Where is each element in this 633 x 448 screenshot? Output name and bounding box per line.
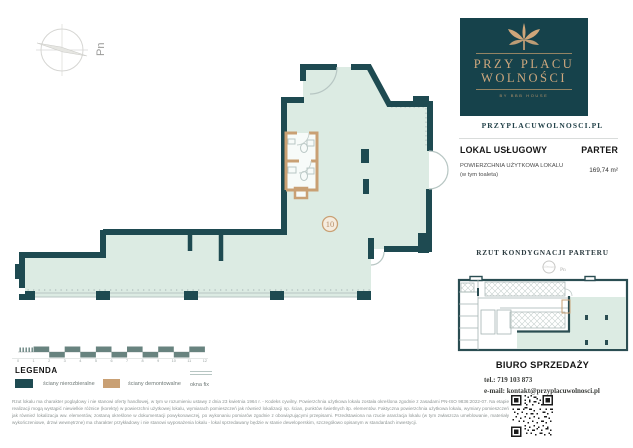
logo-tagline: BY BBB HOUSE	[500, 93, 549, 98]
legend-swatch-demountable-walls	[103, 379, 120, 388]
svg-text:8: 8	[142, 359, 144, 363]
logo-title-line2: WOLNOŚCI	[474, 71, 575, 85]
svg-text:4: 4	[79, 359, 81, 363]
website-url: PRZYPLACUWOLNOSCI.PL	[455, 121, 630, 130]
sales-contact: tel.: 719 103 873 e-mail: kontakt@przypl…	[484, 375, 600, 396]
mini-floorplan	[459, 277, 627, 351]
legend-label-demountable-walls: ściany demontowalne	[128, 381, 181, 387]
svg-text:7: 7	[126, 359, 128, 363]
svg-text:2: 2	[48, 359, 50, 363]
scale-bar: 0 1 2 3 4 5 6 7 8 9 10 11 12	[17, 347, 207, 364]
legend-title: LEGENDA	[15, 366, 58, 375]
unit-number: 10	[326, 219, 335, 229]
svg-text:9: 9	[157, 359, 159, 363]
legend-symbol-fix-windows	[190, 371, 212, 377]
svg-text:5: 5	[95, 359, 97, 363]
sales-office-title: BIURO SPRZEDAŻY	[455, 360, 630, 370]
panel-divider	[459, 138, 618, 139]
unit-info: LOKAL USŁUGOWY PARTER POWIERZCHNIA UŻYTK…	[460, 145, 618, 179]
logo-divider-bottom	[476, 89, 572, 90]
unit-type-label: LOKAL USŁUGOWY	[460, 145, 547, 155]
legend-label-permanent-walls: ściany nierozbieralne	[43, 381, 95, 387]
lotus-leaf-icon	[507, 23, 541, 53]
svg-text:12: 12	[203, 359, 207, 363]
brand-logo: PRZY PLACU WOLNOŚCI BY BBB HOUSE	[460, 18, 588, 116]
unit-number-badge: 10	[323, 217, 338, 232]
area-note: (w tym toaleta)	[460, 171, 563, 180]
overview-title: RZUT KONDYGNACJI PARTERU	[455, 248, 630, 257]
sales-phone: tel.: 719 103 873	[484, 375, 600, 386]
svg-text:6: 6	[110, 359, 112, 363]
area-label: POWIERZCHNIA UŻYTKOWA LOKALU	[460, 162, 563, 171]
wall-notch	[19, 288, 25, 294]
compass-rose-icon: Pn	[36, 24, 107, 76]
qr-code	[511, 395, 553, 437]
svg-text:1: 1	[33, 359, 35, 363]
legend-divider	[12, 358, 208, 359]
legend-swatch-permanent-walls	[15, 379, 33, 388]
svg-text:11: 11	[187, 359, 191, 363]
mini-compass-north-label: Pn	[560, 267, 566, 273]
area-value: 169,74 m²	[589, 167, 618, 174]
legal-disclaimer: Rzut lokalu ma charakter poglądowy i nie…	[12, 399, 509, 427]
logo-divider-top	[476, 53, 572, 54]
legend-label-fix-windows: okna fix	[190, 382, 209, 388]
svg-text:0: 0	[17, 359, 19, 363]
mini-compass-icon: Pn	[542, 261, 566, 273]
logo-title: PRZY PLACU WOLNOŚCI	[474, 57, 575, 86]
svg-text:3: 3	[64, 359, 66, 363]
unit-floor-label: PARTER	[581, 145, 618, 155]
toilet-rooms	[286, 133, 317, 198]
floorplan-flyer-page: Pn	[0, 0, 633, 448]
logo-title-line1: PRZY PLACU	[474, 57, 575, 71]
svg-text:10: 10	[172, 359, 176, 363]
compass-north-label: Pn	[95, 43, 107, 56]
main-floorplan: 10	[15, 67, 448, 300]
sales-email: e-mail: kontakt@przyplacuwolnosci.pl	[484, 386, 600, 397]
